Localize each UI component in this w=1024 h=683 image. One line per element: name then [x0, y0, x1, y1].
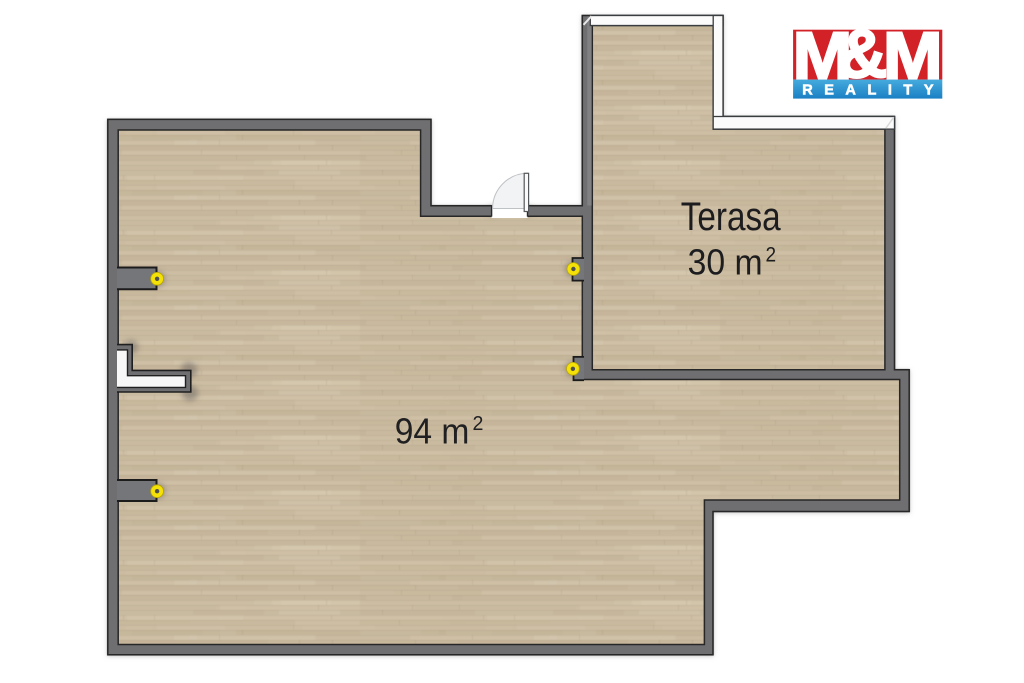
svg-text:94 m: 94 m	[395, 410, 470, 451]
svg-text:Terasa: Terasa	[681, 195, 782, 239]
svg-text:2: 2	[766, 244, 777, 267]
svg-text:2: 2	[473, 413, 484, 435]
svg-text:30 m: 30 m	[688, 242, 763, 283]
